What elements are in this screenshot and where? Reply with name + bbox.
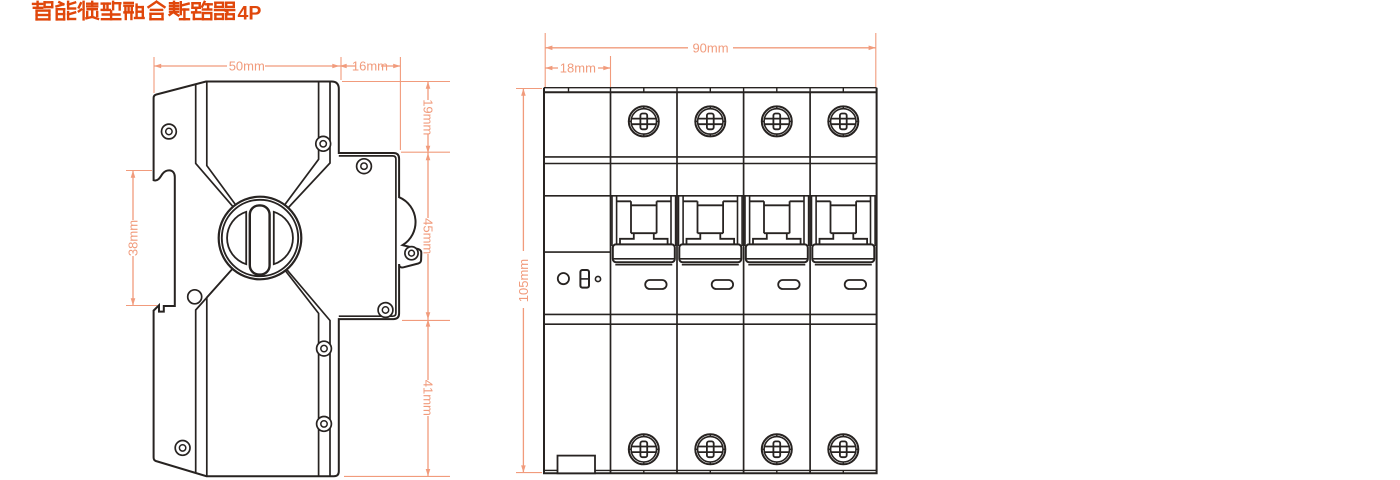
svg-text:4P: 4P (238, 2, 262, 24)
svg-text:45mm: 45mm (421, 218, 436, 254)
svg-text:38mm: 38mm (126, 220, 141, 256)
svg-text:41mm: 41mm (421, 380, 436, 416)
svg-text:105mm: 105mm (516, 259, 531, 302)
svg-text:18mm: 18mm (560, 61, 596, 76)
svg-text:90mm: 90mm (692, 40, 728, 55)
svg-text:16mm: 16mm (352, 59, 388, 74)
svg-text:50mm: 50mm (229, 59, 265, 74)
svg-text:19mm: 19mm (421, 99, 436, 135)
